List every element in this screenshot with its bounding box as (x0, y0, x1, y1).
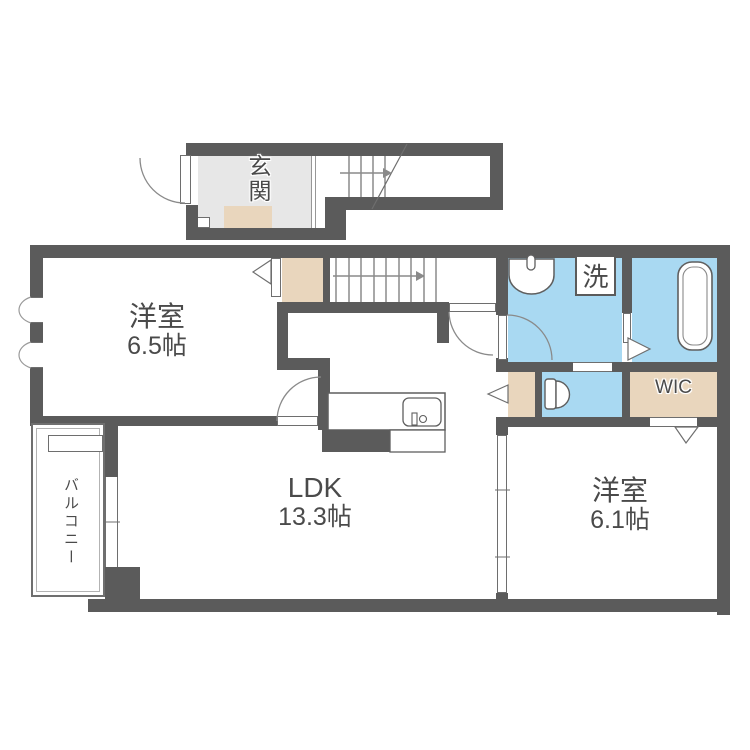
ldk-label: LDK 13.3帖 (215, 472, 415, 531)
laundry-label: 洗 (582, 257, 608, 294)
ldk-door-swing (277, 377, 321, 421)
bedroom2-area: 6.1帖 (520, 506, 720, 534)
landing-door-swing (449, 312, 493, 355)
kitchen-drain-icon (420, 416, 427, 423)
window-casement-arc-2 (19, 342, 31, 368)
balcony-label: バルコニー (60, 477, 81, 567)
kitchen-counter (322, 393, 445, 452)
stairs-main (336, 258, 436, 302)
ldk-area: 13.3帖 (215, 503, 415, 531)
washroom-door-swing (507, 315, 552, 360)
ldk-name: LDK (215, 472, 415, 503)
bedroom2-name: 洋室 (520, 475, 720, 506)
window-casement-arc-1 (19, 297, 31, 323)
bedroom2-label: 洋室 6.1帖 (520, 475, 720, 534)
entrance-label: 玄関 (241, 154, 275, 204)
sink-icon (509, 255, 554, 294)
kitchen-faucet-icon (412, 413, 417, 425)
wic-folding-door-icon (675, 427, 698, 443)
bedroom1-area: 6.5帖 (57, 332, 257, 360)
laundry-box: 洗 (575, 255, 616, 296)
wic-label: WIC (630, 377, 717, 399)
toilet-icon (545, 379, 570, 409)
kitchen-base-cabinet (390, 430, 445, 452)
storage-folding-door-icon (488, 385, 508, 403)
entrance-door-swing (140, 158, 185, 203)
bedroom1-name: 洋室 (57, 301, 257, 332)
closet-folding-door-icon (253, 260, 271, 284)
stairs-upper (349, 144, 407, 209)
stairs-upper-arrowhead (383, 168, 392, 178)
bathtub-icon (678, 262, 712, 350)
floor-plan: 玄関 洋室 6.5帖 LDK 13.3帖 洋室 6.1帖 WIC 洗 バルコニー (0, 0, 750, 750)
plan-symbols (0, 0, 750, 750)
bathroom-folding-door-icon (628, 338, 650, 360)
kitchen-base-block (322, 430, 390, 452)
bedroom1-label: 洋室 6.5帖 (57, 301, 257, 360)
